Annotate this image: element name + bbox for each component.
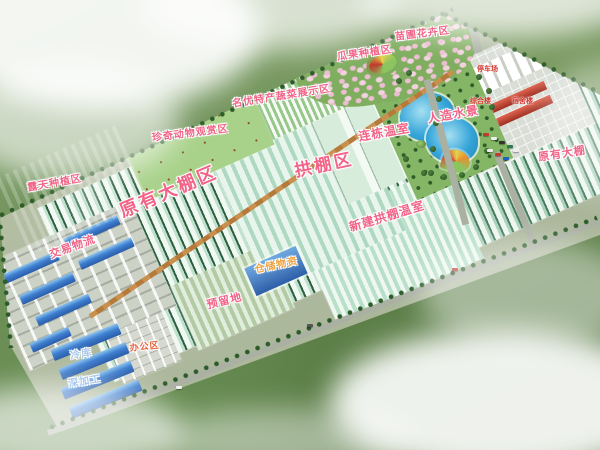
zone-label-entrance-building-1: 综合楼 bbox=[470, 96, 491, 106]
warehouse-roof bbox=[35, 293, 92, 326]
car bbox=[499, 141, 505, 144]
car bbox=[495, 153, 501, 156]
zone-label-entrance-parking: 停车场 bbox=[477, 64, 498, 74]
aerial-site-plan: 露天种植区 珍奇动物观赏区 名优特产蔬菜展示区 瓜果种植区 苗圃花卉区 拱棚区 … bbox=[0, 0, 600, 450]
car bbox=[483, 133, 489, 136]
car bbox=[503, 157, 509, 160]
car bbox=[513, 149, 519, 152]
tree bbox=[473, 164, 479, 170]
car bbox=[176, 386, 182, 389]
car bbox=[507, 145, 513, 148]
cloud bbox=[140, 0, 400, 50]
car bbox=[452, 268, 458, 271]
tree bbox=[421, 170, 427, 176]
tree bbox=[459, 172, 465, 178]
tree bbox=[476, 74, 482, 80]
warehouse-roof bbox=[19, 272, 76, 305]
tree bbox=[430, 146, 436, 152]
tree bbox=[403, 156, 409, 162]
car bbox=[491, 137, 497, 140]
tree bbox=[441, 174, 447, 180]
cloud bbox=[0, 0, 260, 110]
tree bbox=[486, 88, 492, 94]
cloud bbox=[330, 330, 600, 450]
zone-label-entrance-building-2: 宿舍楼 bbox=[512, 96, 533, 106]
tree bbox=[406, 70, 412, 76]
tree bbox=[428, 170, 434, 176]
tree bbox=[436, 96, 442, 102]
cloud bbox=[150, 408, 410, 450]
island bbox=[416, 140, 426, 148]
car bbox=[487, 149, 493, 152]
tree bbox=[396, 78, 402, 84]
car bbox=[307, 324, 313, 327]
